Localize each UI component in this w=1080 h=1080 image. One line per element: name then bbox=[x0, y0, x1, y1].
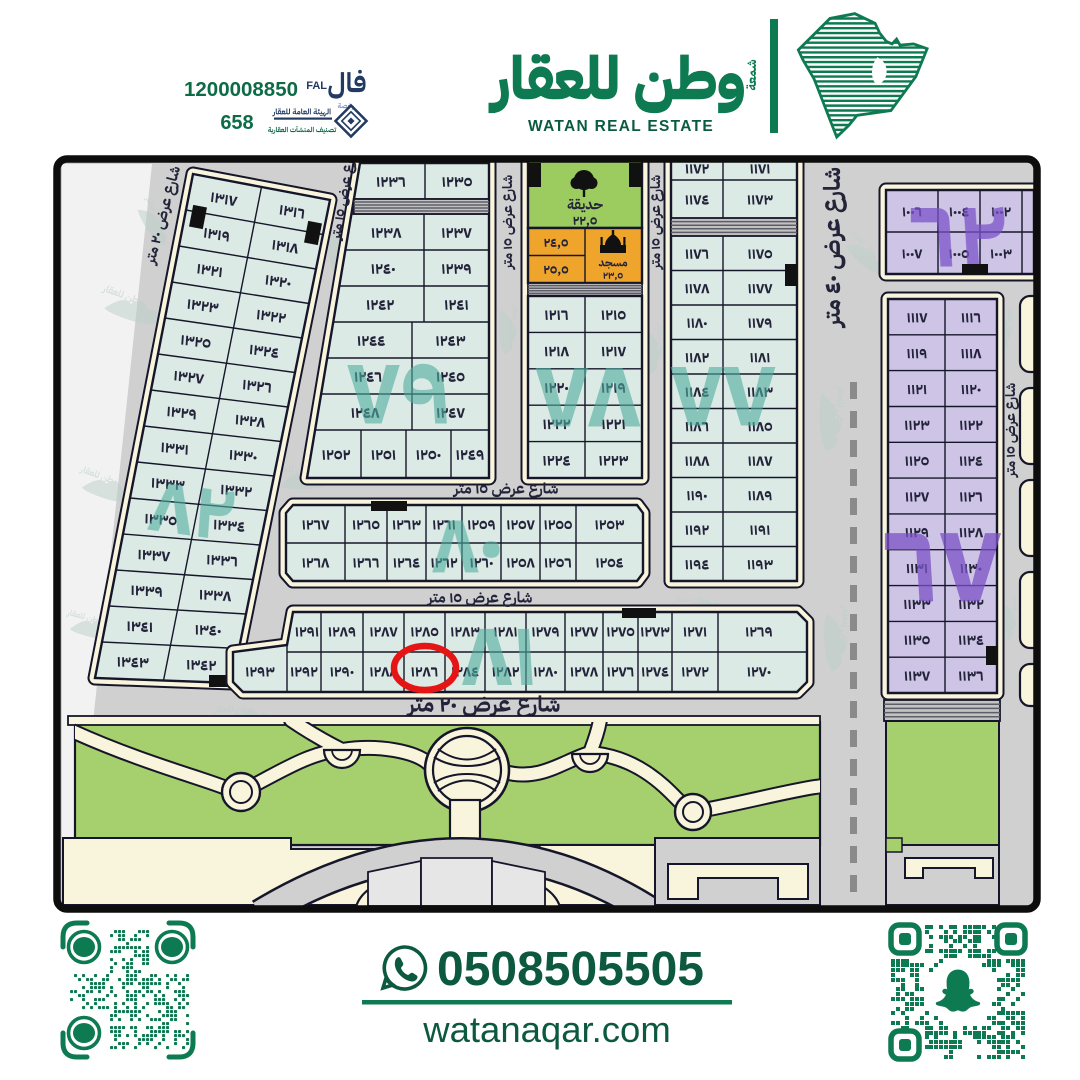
svg-text:WATAN REAL ESTATE: WATAN REAL ESTATE bbox=[528, 118, 714, 135]
svg-text:0508505505: 0508505505 bbox=[437, 943, 704, 996]
svg-text:1200008850: 1200008850 bbox=[184, 78, 298, 101]
svg-text:watanaqar.com: watanaqar.com bbox=[422, 1009, 671, 1050]
svg-text:FAL: FAL bbox=[306, 80, 327, 92]
svg-text:658: 658 bbox=[220, 112, 253, 134]
